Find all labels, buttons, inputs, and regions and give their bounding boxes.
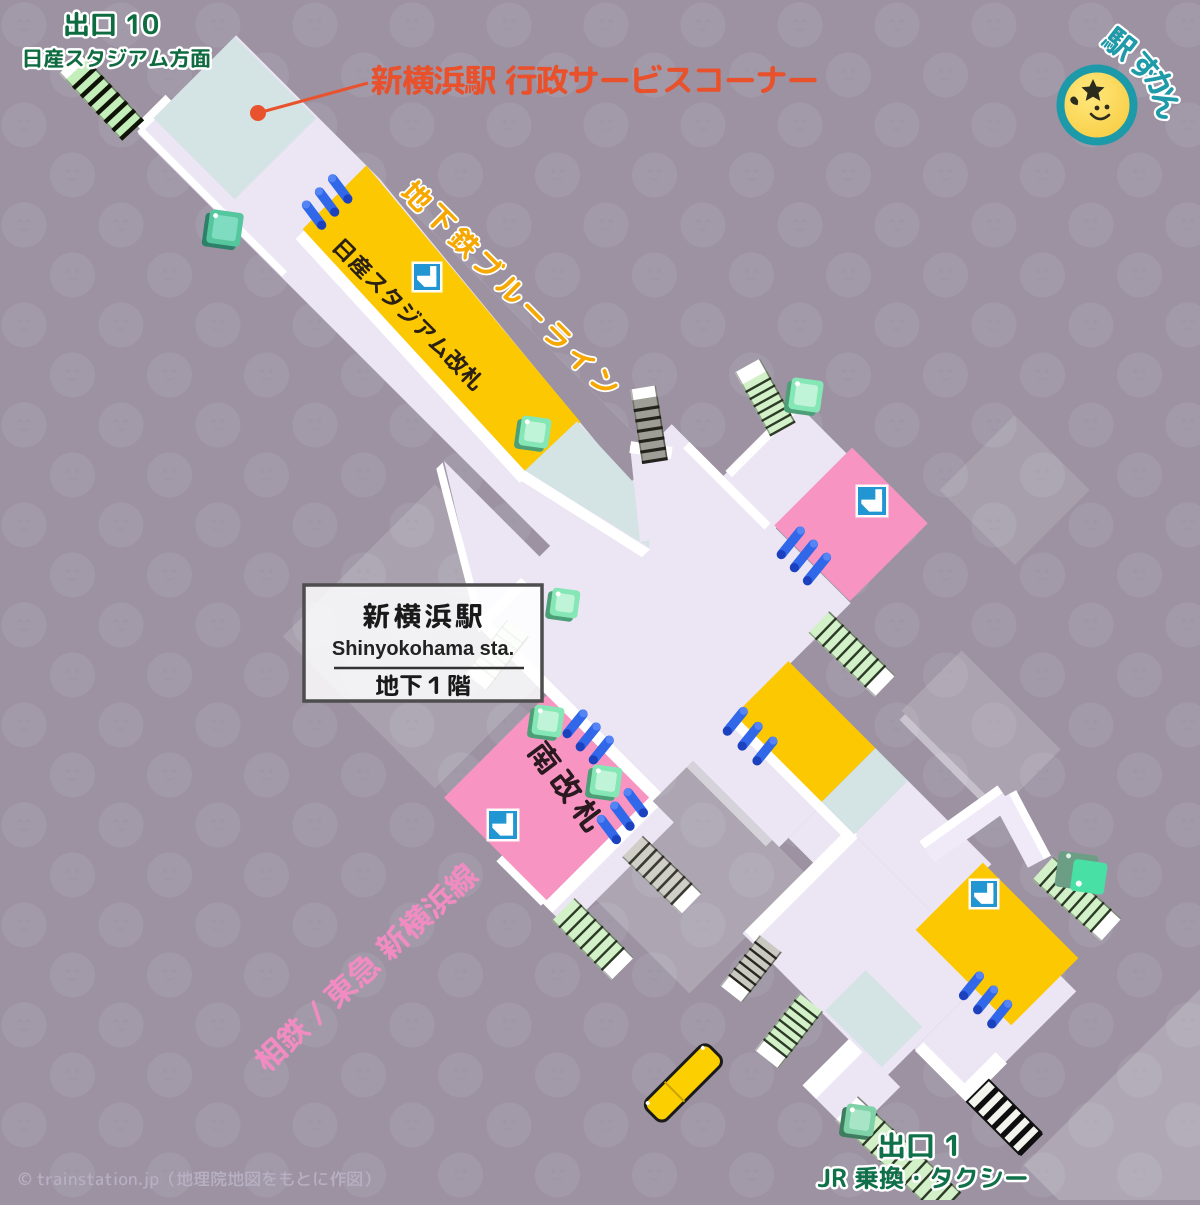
svg-text:Shinyokohama sta.: Shinyokohama sta. xyxy=(332,638,514,660)
